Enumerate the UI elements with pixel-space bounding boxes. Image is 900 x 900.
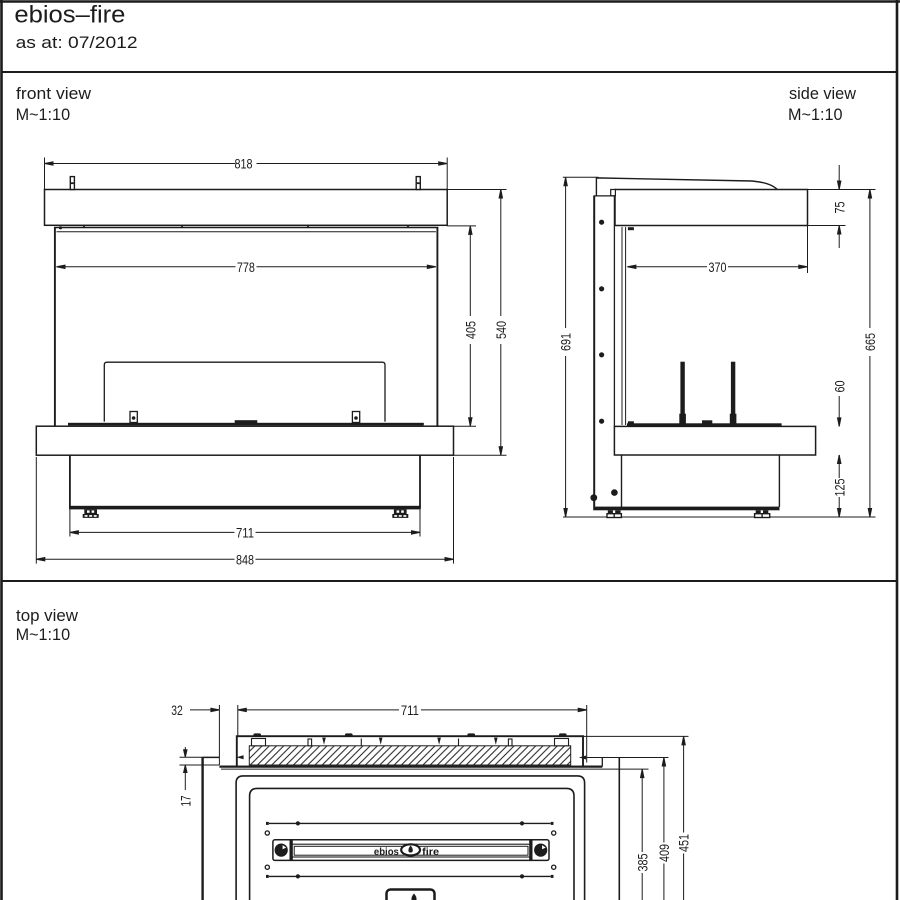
svg-text:as at: 07/2012: as at: 07/2012 (16, 33, 138, 52)
svg-text:front view: front view (16, 84, 92, 103)
svg-text:M~1:10: M~1:10 (16, 105, 71, 124)
svg-text:M~1:10: M~1:10 (16, 625, 71, 644)
svg-text:405: 405 (462, 321, 478, 339)
svg-text:451: 451 (676, 834, 692, 852)
svg-text:540: 540 (493, 321, 509, 339)
svg-text:385: 385 (634, 853, 650, 871)
svg-text:M~1:10: M~1:10 (788, 105, 843, 124)
svg-text:665: 665 (862, 333, 878, 351)
svg-text:32: 32 (171, 702, 183, 718)
svg-text:125: 125 (831, 478, 847, 496)
svg-text:370: 370 (709, 259, 727, 275)
svg-text:fire: fire (422, 846, 439, 858)
svg-text:17: 17 (177, 795, 193, 806)
svg-text:ebios–fire: ebios–fire (14, 2, 125, 29)
svg-text:75: 75 (831, 201, 847, 213)
svg-text:711: 711 (236, 525, 254, 541)
svg-text:848: 848 (236, 551, 254, 567)
svg-text:778: 778 (237, 259, 255, 275)
svg-text:711: 711 (401, 702, 419, 718)
svg-text:top view: top view (16, 606, 79, 625)
svg-text:691: 691 (558, 333, 574, 351)
svg-text:818: 818 (235, 156, 253, 172)
svg-text:60: 60 (831, 380, 847, 392)
svg-text:409: 409 (656, 844, 672, 862)
svg-text:ebios: ebios (374, 846, 399, 858)
svg-text:side view: side view (789, 84, 857, 103)
